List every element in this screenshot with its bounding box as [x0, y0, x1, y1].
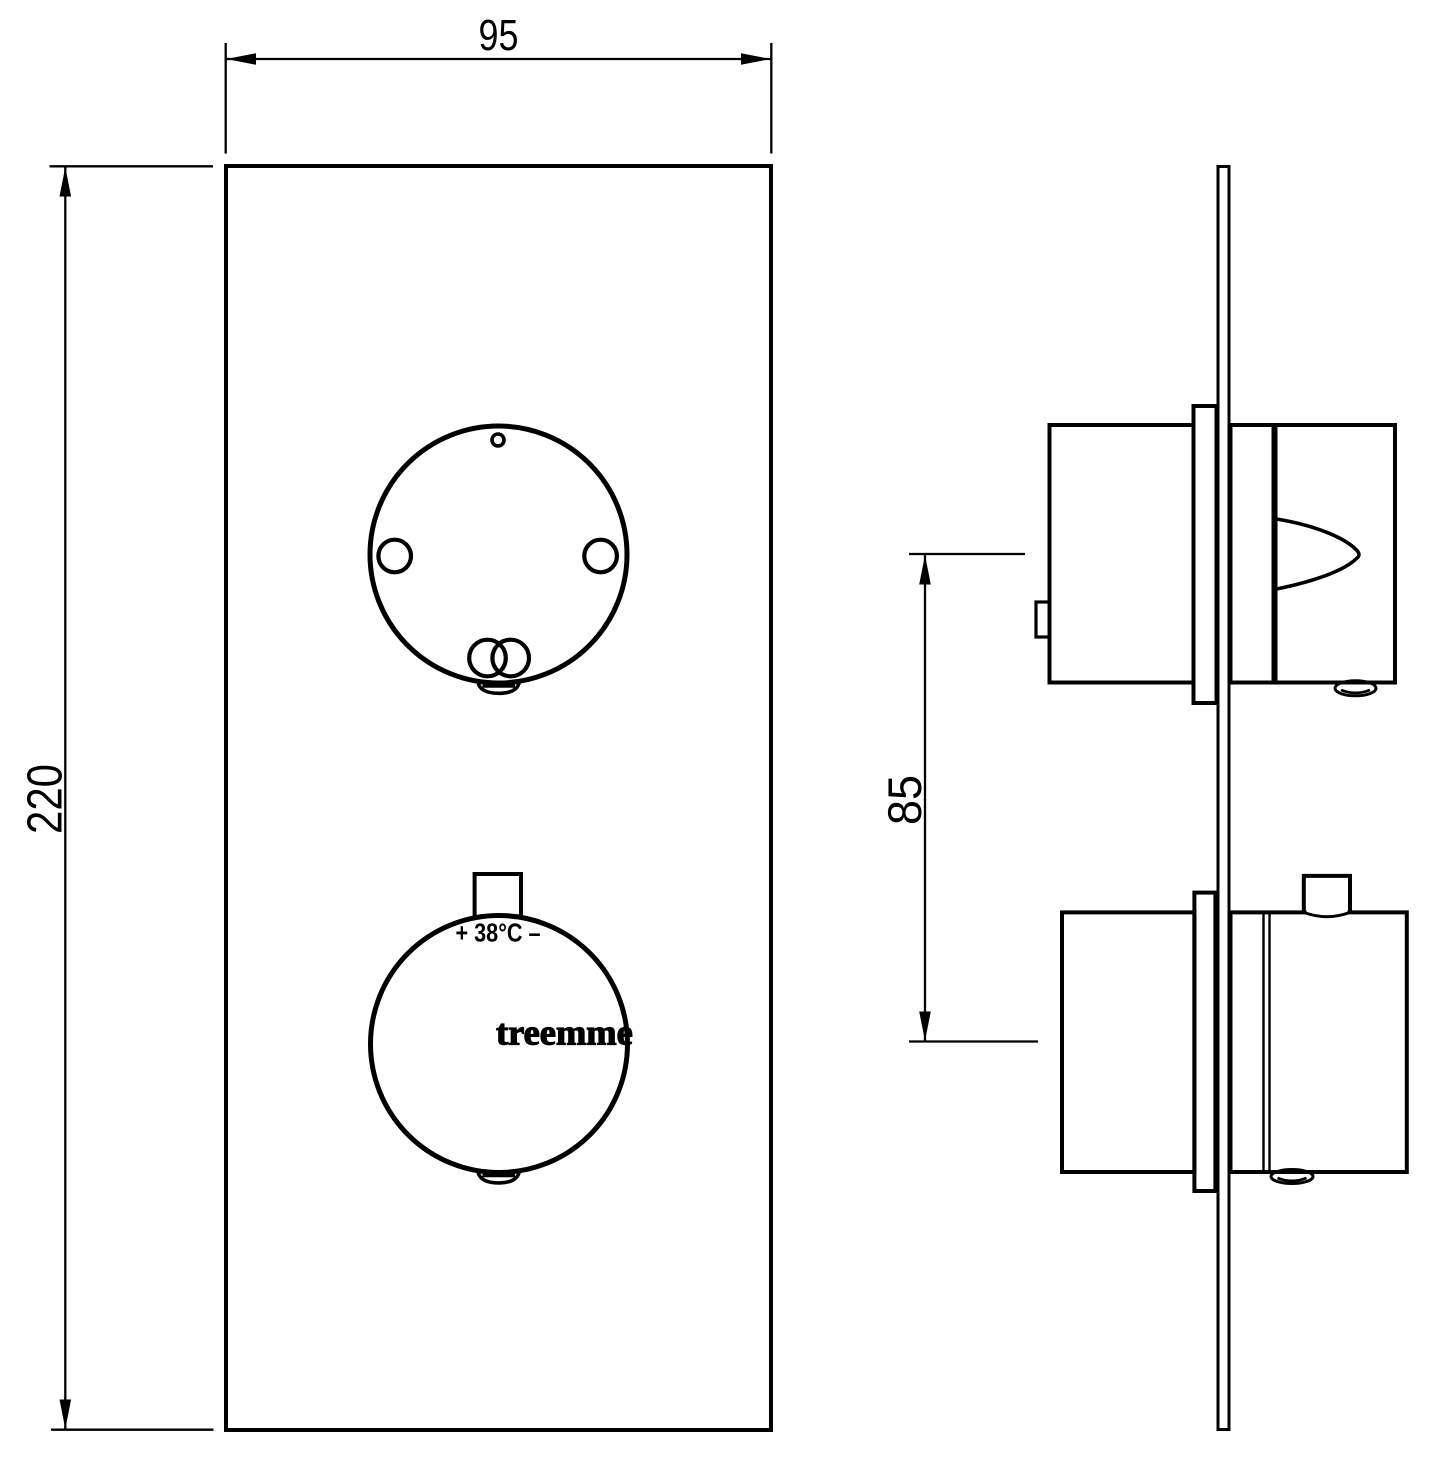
- svg-text:95: 95: [479, 11, 519, 60]
- svg-text:85: 85: [878, 775, 931, 825]
- svg-text:treemme: treemme: [496, 1013, 633, 1053]
- svg-text:+ 38°C –: + 38°C –: [456, 918, 541, 948]
- svg-text:220: 220: [19, 764, 73, 834]
